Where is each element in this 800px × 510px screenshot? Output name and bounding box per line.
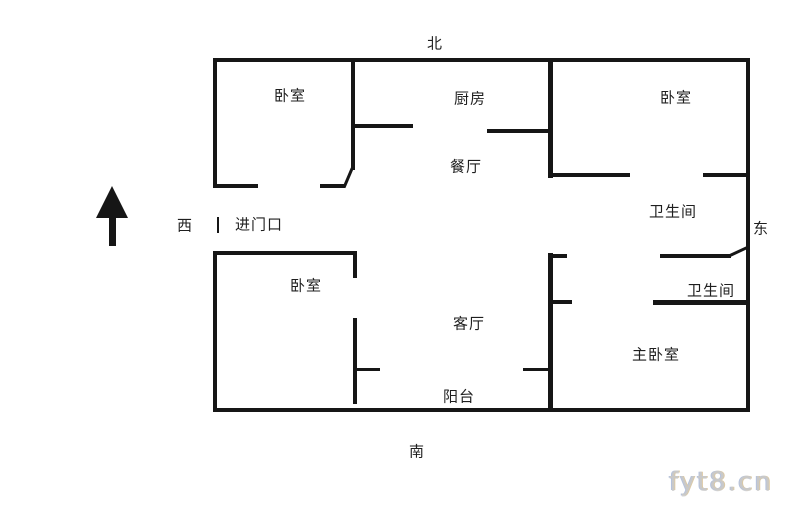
kitchen-east-wall (548, 58, 553, 178)
label-entrance: 进门口 (235, 218, 283, 233)
wall-west-lower (213, 252, 217, 412)
bedroom-nw-south-wall-b (320, 184, 345, 188)
wall-west-upper (213, 58, 217, 188)
kitchen-south-wall (487, 129, 551, 133)
bedroom-ne-south-wall-b (703, 173, 750, 177)
balcony-stub-west (353, 368, 380, 371)
site-watermark: fyt8.cn (669, 467, 773, 497)
bedroom-ne-south-wall-a (551, 173, 630, 177)
label-kitchen: 厨房 (454, 92, 486, 107)
living-master-wall (548, 253, 553, 412)
label-balcony: 阳台 (443, 390, 475, 405)
compass-south-label: 南 (409, 445, 425, 460)
north-arrow-icon (96, 186, 128, 218)
bedroom-sw-east-wall-a (353, 251, 357, 278)
label-bedroom-ne: 卧室 (660, 91, 692, 106)
floor-plan: 北 南 西 东 卧室 厨房 卧室 餐厅 卫生间 进门口 卧室 卫生间 客厅 主卧… (0, 0, 800, 510)
label-living: 客厅 (453, 317, 485, 332)
label-bathroom-lower: 卫生间 (687, 284, 735, 299)
bedroom-sw-north-wall (213, 251, 357, 255)
hall-stub-lower (550, 300, 572, 304)
bedroom-sw-east-wall-b (353, 318, 357, 404)
balcony-stub-east (523, 368, 550, 371)
label-dining: 餐厅 (450, 160, 482, 175)
compass-west-label: 西 (177, 219, 193, 234)
north-arrow-shaft (109, 215, 116, 246)
kitchen-south-stub-west (353, 124, 413, 128)
label-bedroom-nw: 卧室 (274, 89, 306, 104)
entrance-door-mark (217, 217, 219, 233)
bathroom-upper-south-wall (660, 254, 731, 258)
compass-east-label: 东 (753, 222, 769, 237)
wall-east (746, 58, 750, 412)
bedroom-nw-east-wall (351, 58, 355, 170)
bathroom-lower-south-wall (653, 300, 750, 305)
wall-south (213, 408, 750, 412)
label-bathroom-upper: 卫生间 (649, 205, 697, 220)
label-bedroom-sw: 卧室 (290, 279, 322, 294)
compass-north-label: 北 (427, 37, 443, 52)
label-master-bedroom: 主卧室 (632, 348, 680, 363)
wall-north (213, 58, 750, 62)
bedroom-nw-south-wall-a (213, 184, 258, 188)
